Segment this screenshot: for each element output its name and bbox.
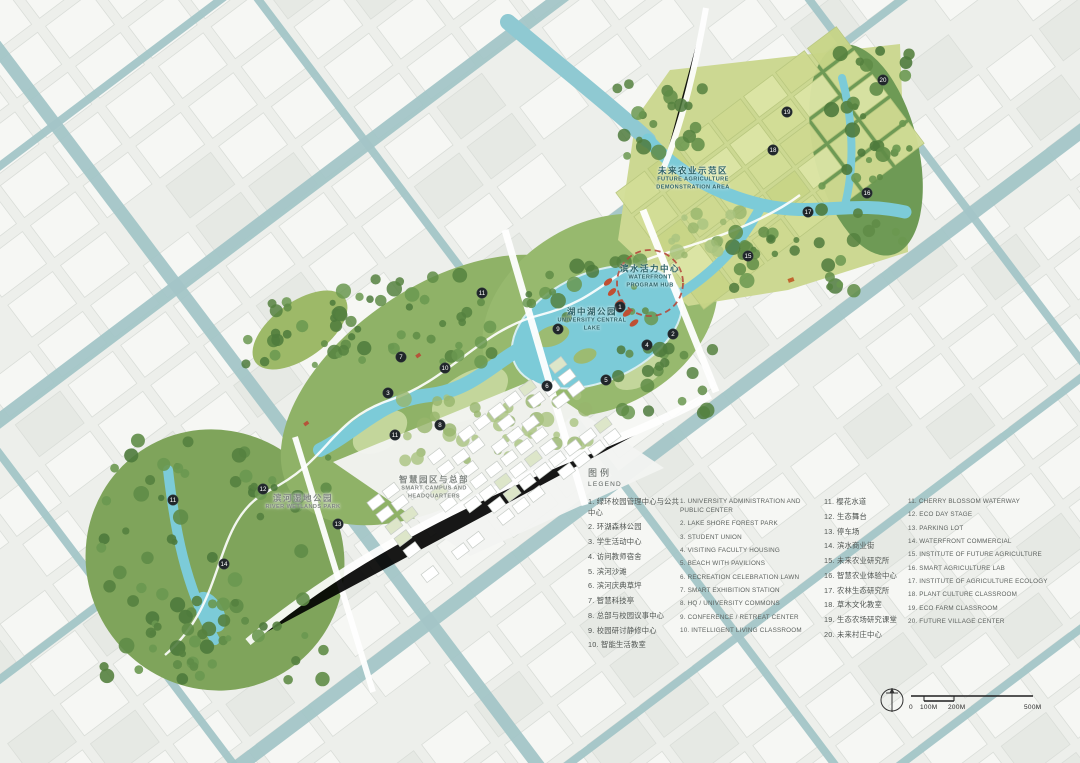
map-marker: 17 [803, 207, 814, 218]
scale-bar-line [911, 696, 1033, 701]
legend-item: 19. ECO FARM CLASSROOM [908, 604, 1054, 613]
legend-item: 12. ECO DAY STAGE [908, 510, 1054, 519]
legend-item: 19. 生态农场研究课堂 [824, 615, 908, 626]
legend-item: 17. INSTITUTE OF AGRICULTURE ECOLOGY [908, 577, 1054, 586]
legend-item: 14. 滨水商业街 [824, 541, 908, 552]
legend-item: 8. 总部与校园议事中心 [588, 611, 680, 622]
legend: 图例 LEGEND 1. 绿环校园管理中心与公共中心2. 环湖森林公园3. 学生… [588, 466, 1054, 655]
legend-item: 14. WATERFRONT COMMERCIAL [908, 537, 1054, 546]
map-marker-number: 7 [399, 354, 403, 361]
legend-item: 6. RECREATION CELEBRATION LAWN [680, 573, 818, 582]
map-marker: 11 [477, 288, 488, 299]
legend-item: 16. 智慧农业体验中心 [824, 571, 908, 582]
legend-item: 15. INSTITUTE OF FUTURE AGRICULTURE [908, 550, 1054, 559]
map-marker: 5 [601, 375, 612, 386]
legend-item: 20. 未来村庄中心 [824, 630, 908, 641]
map-marker-number: 6 [545, 383, 549, 390]
map-marker: 12 [258, 484, 269, 495]
legend-title-en: LEGEND [588, 481, 1054, 488]
map-marker: 6 [542, 381, 553, 392]
map-marker: 7 [396, 352, 407, 363]
legend-item: 7. 智慧科技亭 [588, 596, 680, 607]
map-marker-number: 17 [805, 209, 812, 216]
map-marker: 4 [642, 340, 653, 351]
legend-item: 9. CONFERENCE / RETREAT CENTER [680, 613, 818, 622]
map-marker-number: 18 [770, 147, 777, 154]
map-marker-number: 19 [784, 109, 791, 116]
map-marker-number: 1 [618, 304, 622, 311]
map-marker-number: 13 [335, 521, 342, 528]
scale-label-200m: 200M [948, 704, 965, 711]
map-marker-number: 4 [645, 342, 649, 349]
legend-item: 16. SMART AGRICULTURE LAB [908, 564, 1054, 573]
map-marker: 8 [435, 420, 446, 431]
map-marker-number: 5 [604, 377, 608, 384]
map-marker: 16 [862, 188, 873, 199]
map-marker-number: 16 [864, 190, 871, 197]
map-marker-number: 11 [479, 290, 486, 297]
legend-item: 17. 农林生态研究所 [824, 586, 908, 597]
legend-item: 4. 访问教师宿舍 [588, 552, 680, 563]
legend-item: 3. 学生活动中心 [588, 537, 680, 548]
map-marker-number: 3 [386, 390, 390, 397]
legend-item: 10. 智能生活教室 [588, 640, 680, 651]
map-marker-number: 20 [880, 77, 887, 84]
legend-item: 1. 绿环校园管理中心与公共中心 [588, 497, 680, 518]
map-marker-number: 10 [442, 365, 449, 372]
legend-item: 12. 生态舞台 [824, 512, 908, 523]
legend-col-zh-11-20: 11. 樱花水道12. 生态舞台13. 停车场14. 滨水商业街15. 未来农业… [824, 497, 908, 645]
map-marker: 2 [668, 329, 679, 340]
legend-item: 11. CHERRY BLOSSOM WATERWAY [908, 497, 1054, 506]
map-marker: 11 [390, 430, 401, 441]
legend-item: 2. LAKE SHORE FOREST PARK [680, 519, 818, 528]
north-arrow-icon [881, 688, 903, 712]
masterplan-map: 12345678910111111121314151617181920 未来农业… [0, 0, 1080, 763]
map-marker: 10 [440, 363, 451, 374]
map-marker-number: 14 [221, 561, 228, 568]
legend-col-zh-1-10: 1. 绿环校园管理中心与公共中心2. 环湖森林公园3. 学生活动中心4. 访问教… [588, 497, 680, 655]
scale-label-500m: 500M [1024, 704, 1041, 711]
map-marker: 13 [333, 519, 344, 530]
legend-item: 5. BEACH WITH PAVILIONS [680, 559, 818, 568]
map-marker-number: 9 [556, 326, 560, 333]
map-marker: 14 [219, 559, 230, 570]
legend-item: 18. PLANT CULTURE CLASSROOM [908, 590, 1054, 599]
legend-col-en-11-20: 11. CHERRY BLOSSOM WATERWAY12. ECO DAY S… [908, 497, 1054, 630]
legend-item: 9. 校园研讨静修中心 [588, 626, 680, 637]
legend-item: 15. 未来农业研究所 [824, 556, 908, 567]
legend-item: 3. STUDENT UNION [680, 533, 818, 542]
map-marker: 20 [878, 75, 889, 86]
map-marker: 1 [615, 302, 626, 313]
map-marker: 11 [168, 495, 179, 506]
legend-item: 4. VISITING FACULTY HOUSING [680, 546, 818, 555]
map-marker-number: 11 [392, 432, 399, 439]
legend-columns: 1. 绿环校园管理中心与公共中心2. 环湖森林公园3. 学生活动中心4. 访问教… [588, 497, 1054, 655]
map-marker-number: 11 [170, 497, 177, 504]
scale-bar: 0 100M 200M 500M [876, 684, 1062, 724]
legend-item: 11. 樱花水道 [824, 497, 908, 508]
map-marker: 9 [553, 324, 564, 335]
legend-item: 7. SMART EXHIBITION STATION [680, 586, 818, 595]
map-marker-number: 15 [745, 253, 752, 260]
map-marker-number: 8 [438, 422, 442, 429]
legend-title-zh: 图例 [588, 466, 1054, 479]
legend-item: 1. UNIVERSITY ADMINISTRATION AND PUBLIC … [680, 497, 818, 515]
map-marker-number: 2 [671, 331, 675, 338]
legend-item: 10. INTELLIGENT LIVING CLASSROOM [680, 626, 818, 635]
map-marker: 18 [768, 145, 779, 156]
map-marker-number: 12 [260, 486, 267, 493]
legend-item: 20. FUTURE VILLAGE CENTER [908, 617, 1054, 626]
legend-item: 8. HQ / UNIVERSITY COMMONS [680, 599, 818, 608]
scale-label-100m: 100M [920, 704, 937, 711]
scale-label-0: 0 [909, 704, 913, 711]
map-marker: 3 [383, 388, 394, 399]
legend-item: 6. 滨河庆典草坪 [588, 581, 680, 592]
legend-item: 18. 草木文化教室 [824, 600, 908, 611]
map-marker: 19 [782, 107, 793, 118]
legend-item: 5. 滨河沙滩 [588, 567, 680, 578]
map-marker: 15 [743, 251, 754, 262]
legend-col-en-1-10: 1. UNIVERSITY ADMINISTRATION AND PUBLIC … [680, 497, 824, 639]
legend-item: 13. PARKING LOT [908, 524, 1054, 533]
legend-item: 2. 环湖森林公园 [588, 522, 680, 533]
legend-item: 13. 停车场 [824, 527, 908, 538]
